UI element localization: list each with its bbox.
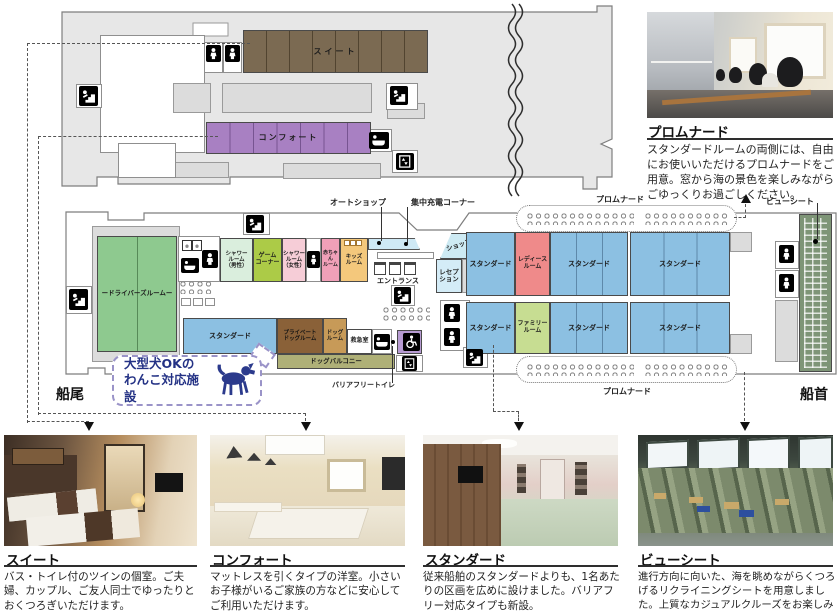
- room-ladies: レディース ルーム: [515, 232, 550, 296]
- stairs-icon: [246, 215, 264, 233]
- chairs-cluster-icon: [644, 363, 730, 376]
- promenade-connector: [745, 204, 746, 218]
- elevator-icon: [402, 356, 417, 371]
- room-standard: スタンダード: [550, 302, 628, 354]
- toy-block-icon: [356, 240, 362, 246]
- charging-leader: [407, 207, 408, 243]
- suite-connector: [27, 421, 89, 422]
- view-seat-title-rule: [638, 565, 833, 567]
- charging-table-icon: [374, 262, 386, 275]
- bow-label: 船首: [800, 384, 828, 404]
- comfort-arrow: [301, 422, 311, 431]
- barrier-free-label: バリアフリートイレ: [332, 380, 395, 390]
- room-standard: スタンダード: [466, 302, 515, 354]
- bath-icon: [181, 258, 199, 273]
- lower-structure-block: [730, 232, 752, 252]
- room-standard-label: スタンダード: [568, 260, 610, 268]
- charging-marker-dot: [404, 242, 408, 246]
- room-family-label: ファミリー ルーム: [517, 321, 547, 335]
- table-block: [181, 298, 191, 306]
- lower-structure-block: [730, 334, 752, 354]
- room-standard: スタンダード: [630, 302, 730, 354]
- promenade-arrow: [741, 194, 751, 203]
- room-game-corner-label: ゲーム コーナー: [255, 253, 279, 267]
- standard-arrow: [514, 422, 524, 431]
- table-block: [205, 298, 215, 306]
- comfort-connector: [38, 136, 39, 415]
- standard-section-desc: 従来船舶のスタンダードよりも、1名あたりの区画を広めに設けました。バリアフリー対…: [423, 570, 621, 613]
- dog-balcony-label: ドッグバルコニー: [310, 358, 362, 365]
- room-game-corner: ゲーム コーナー: [253, 238, 282, 282]
- room-standard: スタンダード: [466, 232, 515, 296]
- room-suite: スイート: [243, 30, 428, 73]
- washing-machine-icon: [192, 240, 202, 251]
- dog-facility-bubble: 大型犬OKのわんこ対応施設: [112, 355, 262, 406]
- auto-shop-marker-dot: [377, 241, 381, 245]
- washing-machine-icon: [182, 240, 192, 251]
- upper-structure-block: [175, 162, 229, 178]
- chairs-cluster-icon: [526, 363, 634, 376]
- room-drivers-label: ードライバーズルームー: [102, 290, 173, 297]
- dog-silhouette-icon: [210, 361, 260, 401]
- room-dog: ドッグ ルーム: [323, 318, 347, 354]
- room-first-aid-label: 救急室: [350, 338, 368, 345]
- womens-toilet-icon: [307, 251, 320, 268]
- dog-facility-text: 大型犬OKのわんこ対応施設: [114, 356, 208, 405]
- room-private-dog-label: プライベート ドッグルーム: [283, 330, 316, 343]
- womens-toilet-icon: [779, 245, 794, 263]
- view-seat-photo: [638, 435, 833, 546]
- view-seat-arrow: [740, 422, 750, 431]
- room-shower-mens-label: シャワー ルーム （男性）: [225, 251, 247, 270]
- suite-arrow: [84, 422, 94, 431]
- room-shower-womens: シャワー ルーム （女性）: [282, 238, 306, 282]
- suite-photo: [4, 435, 197, 546]
- chairs-cluster-icon: [382, 306, 430, 322]
- stairs-icon: [69, 289, 88, 310]
- room-baby: 赤ちゃん ルーム: [321, 238, 340, 282]
- womens-toilet-icon: [225, 45, 240, 62]
- charging-corner-label: 集中充電コーナー: [411, 197, 475, 208]
- room-suite-label: スイート: [314, 47, 358, 56]
- bath-icon: [369, 132, 389, 149]
- wheelchair-icon: [403, 333, 420, 351]
- room-standard-label: スタンダード: [470, 324, 512, 332]
- promenade-title-rule: [647, 138, 833, 140]
- stairs-icon: [390, 86, 408, 105]
- view-seat-connector: [744, 372, 745, 421]
- view-seat-section-desc: 進行方向に向いた、海を眺めながらくつろげるリクライニングシートを用意しました。上…: [638, 570, 838, 613]
- view-seat-label: ビューシート: [766, 196, 814, 207]
- auto-shop-label: オートショップ: [330, 197, 386, 208]
- mens-toilet-icon: [444, 304, 460, 322]
- mens-toilet-icon: [779, 274, 794, 292]
- stairs-icon: [394, 287, 411, 304]
- room-standard-label: スタンダード: [659, 260, 701, 268]
- room-private-dog: プライベート ドッグルーム: [277, 318, 323, 354]
- chairs-cluster-icon: [179, 280, 213, 294]
- suite-section-desc: バス・トイレ付のツインの個室。ご夫婦、カップル、ご友人同士でゆったりとおくつろぎ…: [4, 570, 201, 613]
- mens-toilet-icon: [206, 45, 221, 62]
- room-standard-label: スタンダード: [568, 324, 610, 332]
- comfort-connector: [38, 136, 218, 137]
- lower-structure-block: [775, 300, 798, 362]
- comfort-connector: [38, 413, 306, 414]
- room-shower-mens: シャワー ルーム （男性）: [220, 238, 253, 282]
- bath-icon: [374, 334, 390, 350]
- room-shower-womens-label: シャワー ルーム （女性）: [283, 251, 305, 270]
- upper-structure-block: [283, 163, 381, 179]
- comfort-photo: [210, 435, 405, 546]
- room-baby-label: 赤ちゃん ルーム: [322, 251, 339, 268]
- chairs-cluster-icon: [526, 212, 634, 225]
- standard-connector: [493, 345, 494, 411]
- view-seat-leader: [817, 203, 818, 239]
- room-dog-label: ドッグ ルーム: [327, 330, 344, 343]
- auto-shop-strip: [368, 238, 420, 250]
- stairs-icon: [79, 86, 98, 106]
- mens-toilet-icon: [202, 250, 218, 268]
- standard-connector: [493, 411, 519, 412]
- room-kids-label: キッズ ルーム: [346, 254, 363, 267]
- promenade-label-bottom: プロムナード: [603, 386, 651, 397]
- entrance-label: エントランス: [377, 276, 419, 286]
- room-standard: スタンダード: [630, 232, 730, 296]
- chairs-cluster-icon: [644, 212, 730, 225]
- barrier-free-marker-dot: [391, 340, 395, 344]
- comfort-title-rule: [210, 565, 405, 567]
- standard-connector: [518, 411, 519, 421]
- room-standard-label: スタンダード: [659, 324, 701, 332]
- auto-shop-leader: [381, 207, 382, 241]
- charging-table-icon: [404, 262, 416, 275]
- elevator-icon: [396, 153, 414, 170]
- dog-balcony: ドッグバルコニー: [277, 354, 395, 369]
- table-block: [193, 298, 203, 306]
- view-seat-area: [799, 214, 832, 372]
- room-standard-label: スタンダード: [470, 260, 512, 268]
- room-family: ファミリー ルーム: [515, 302, 550, 354]
- promenade-photo: [647, 12, 833, 118]
- room-reception: レセプ ション: [436, 259, 462, 293]
- stern-label: 船尾: [56, 384, 84, 404]
- suite-connector: [27, 43, 250, 44]
- promenade-label-top: プロムナード: [596, 194, 644, 205]
- room-first-aid: 救急室: [347, 329, 372, 354]
- standard-title-rule: [423, 565, 618, 567]
- barrier-free-leader: [392, 346, 393, 383]
- room-ladies-label: レディース ルーム: [518, 257, 547, 271]
- room-drivers: ードライバーズルームー: [97, 236, 177, 352]
- room-reception-label: レセプ ション: [439, 269, 459, 284]
- suite-connector: [27, 43, 28, 423]
- upper-room-block: [118, 143, 176, 178]
- room-standard-label: スタンダード: [209, 332, 251, 340]
- room-comfort: コンフォート: [206, 122, 371, 154]
- suite-title-rule: [4, 565, 197, 567]
- view-seat-marker-dot: [813, 239, 818, 244]
- upper-corridor-block: [222, 83, 372, 113]
- room-comfort-label: コンフォート: [259, 133, 319, 142]
- comfort-section-desc: マットレスを引くタイプの洋室。小さいお子様がいるご家族の方などに安心してご利用い…: [210, 570, 408, 613]
- womens-toilet-icon: [444, 328, 460, 346]
- standard-photo: [423, 435, 618, 546]
- room-standard: スタンダード: [550, 232, 628, 296]
- deck-plan-page: スイート コンフォート ードライバーズルームー シャワー ルーム （男性） ゲー…: [0, 0, 840, 613]
- comfort-connector: [305, 413, 306, 421]
- counter-block: [377, 252, 434, 259]
- upper-structure-block: [173, 83, 211, 113]
- stairs-icon: [466, 349, 483, 366]
- charging-table-icon: [389, 262, 401, 275]
